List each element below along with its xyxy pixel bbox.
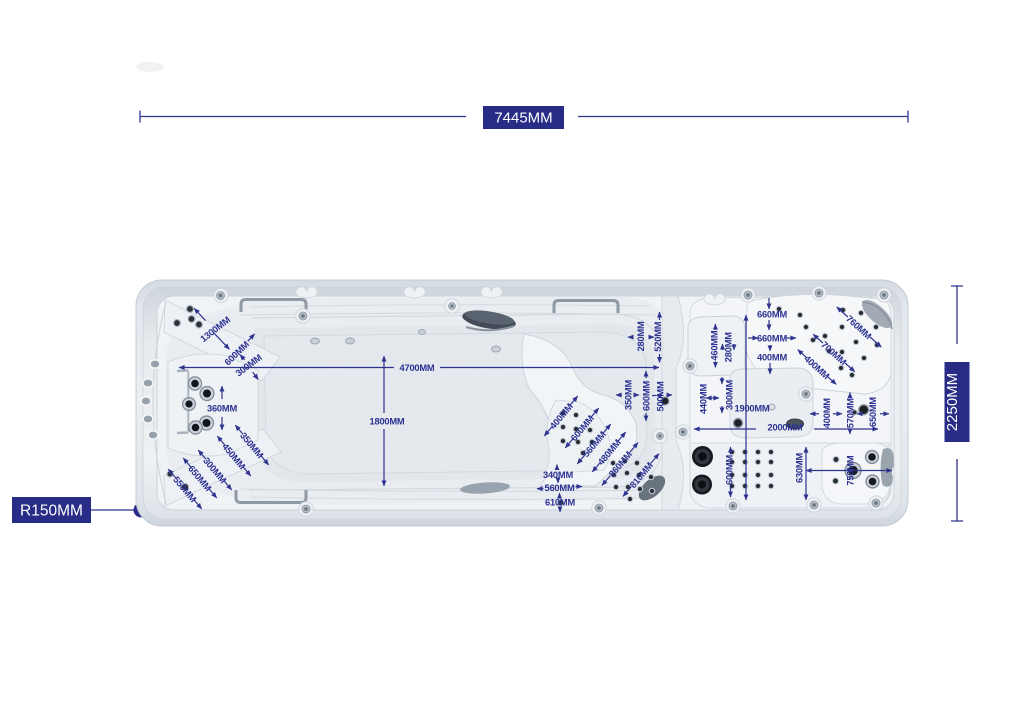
- svg-text:600MM: 600MM: [725, 455, 735, 485]
- svg-text:1800MM: 1800MM: [370, 417, 405, 427]
- svg-text:610MM: 610MM: [545, 498, 575, 508]
- svg-text:280MM: 280MM: [723, 332, 733, 362]
- svg-text:650MM: 650MM: [868, 397, 878, 427]
- svg-text:520MM: 520MM: [653, 321, 663, 351]
- svg-text:500MM: 500MM: [656, 381, 666, 411]
- svg-text:280MM: 280MM: [636, 321, 646, 351]
- svg-text:350MM: 350MM: [624, 380, 634, 410]
- svg-text:560MM: 560MM: [544, 483, 574, 493]
- svg-text:570MM: 570MM: [845, 398, 855, 428]
- svg-text:630MM: 630MM: [795, 453, 805, 483]
- svg-text:2250MM: 2250MM: [944, 373, 961, 431]
- svg-text:400MM: 400MM: [757, 353, 787, 363]
- svg-text:660MM: 660MM: [757, 334, 787, 344]
- svg-text:R150MM: R150MM: [20, 503, 83, 520]
- svg-text:340MM: 340MM: [543, 470, 573, 480]
- svg-text:400MM: 400MM: [822, 398, 832, 428]
- svg-text:460MM: 460MM: [710, 330, 720, 360]
- svg-text:600MM: 600MM: [642, 381, 652, 411]
- svg-text:300MM: 300MM: [725, 380, 735, 410]
- svg-text:440MM: 440MM: [699, 384, 709, 414]
- svg-text:7445MM: 7445MM: [494, 110, 552, 127]
- svg-text:750MM: 750MM: [845, 455, 855, 485]
- svg-text:660MM: 660MM: [757, 310, 787, 320]
- svg-text:1900MM: 1900MM: [735, 404, 770, 414]
- svg-text:360MM: 360MM: [207, 404, 237, 414]
- svg-text:4700MM: 4700MM: [400, 363, 435, 373]
- svg-text:2000MM: 2000MM: [768, 423, 803, 433]
